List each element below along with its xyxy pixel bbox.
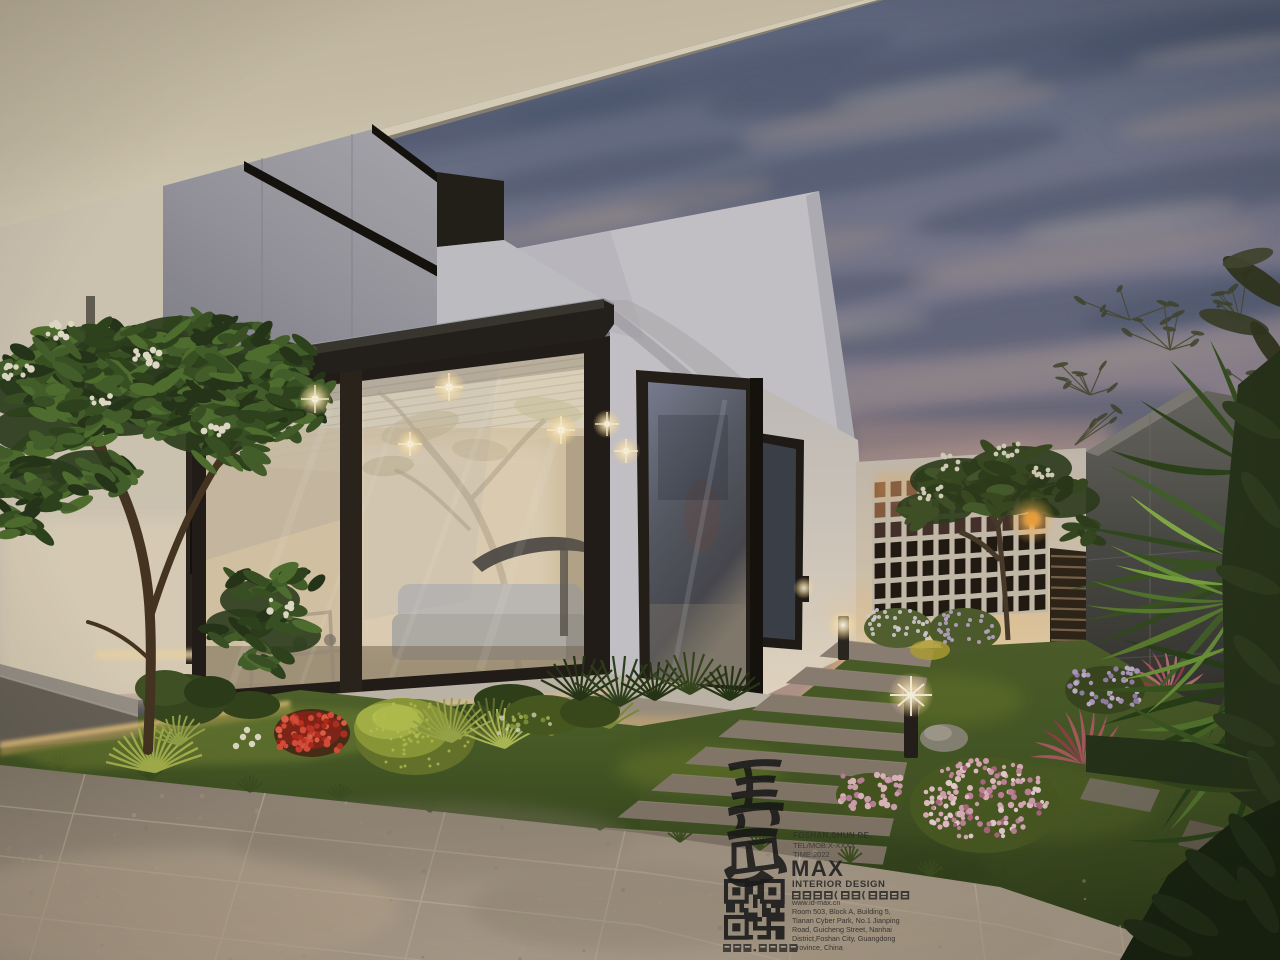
- svg-text:Room 503, Block A, Building 5,: Room 503, Block A, Building 5,: [792, 907, 891, 916]
- svg-text:MAX: MAX: [791, 856, 844, 881]
- svg-text:Tianan Cyber Park, No.1 Jianpi: Tianan Cyber Park, No.1 Jianping: [792, 916, 900, 925]
- svg-text:www.id-max.cn: www.id-max.cn: [791, 898, 840, 907]
- svg-text:Province, China: Province, China: [792, 943, 843, 952]
- svg-text:INTERIOR DESIGN: INTERIOR DESIGN: [792, 879, 885, 890]
- svg-text:FOSHAN,SHUN DE.: FOSHAN,SHUN DE.: [793, 831, 872, 840]
- svg-text:TEL/MOB:X-XXXX: TEL/MOB:X-XXXX: [793, 841, 856, 850]
- svg-text:Road, Guicheng Street, Nanhai: Road, Guicheng Street, Nanhai: [792, 925, 892, 934]
- svg-text:District,Foshan City, Guangdon: District,Foshan City, Guangdong: [792, 934, 895, 943]
